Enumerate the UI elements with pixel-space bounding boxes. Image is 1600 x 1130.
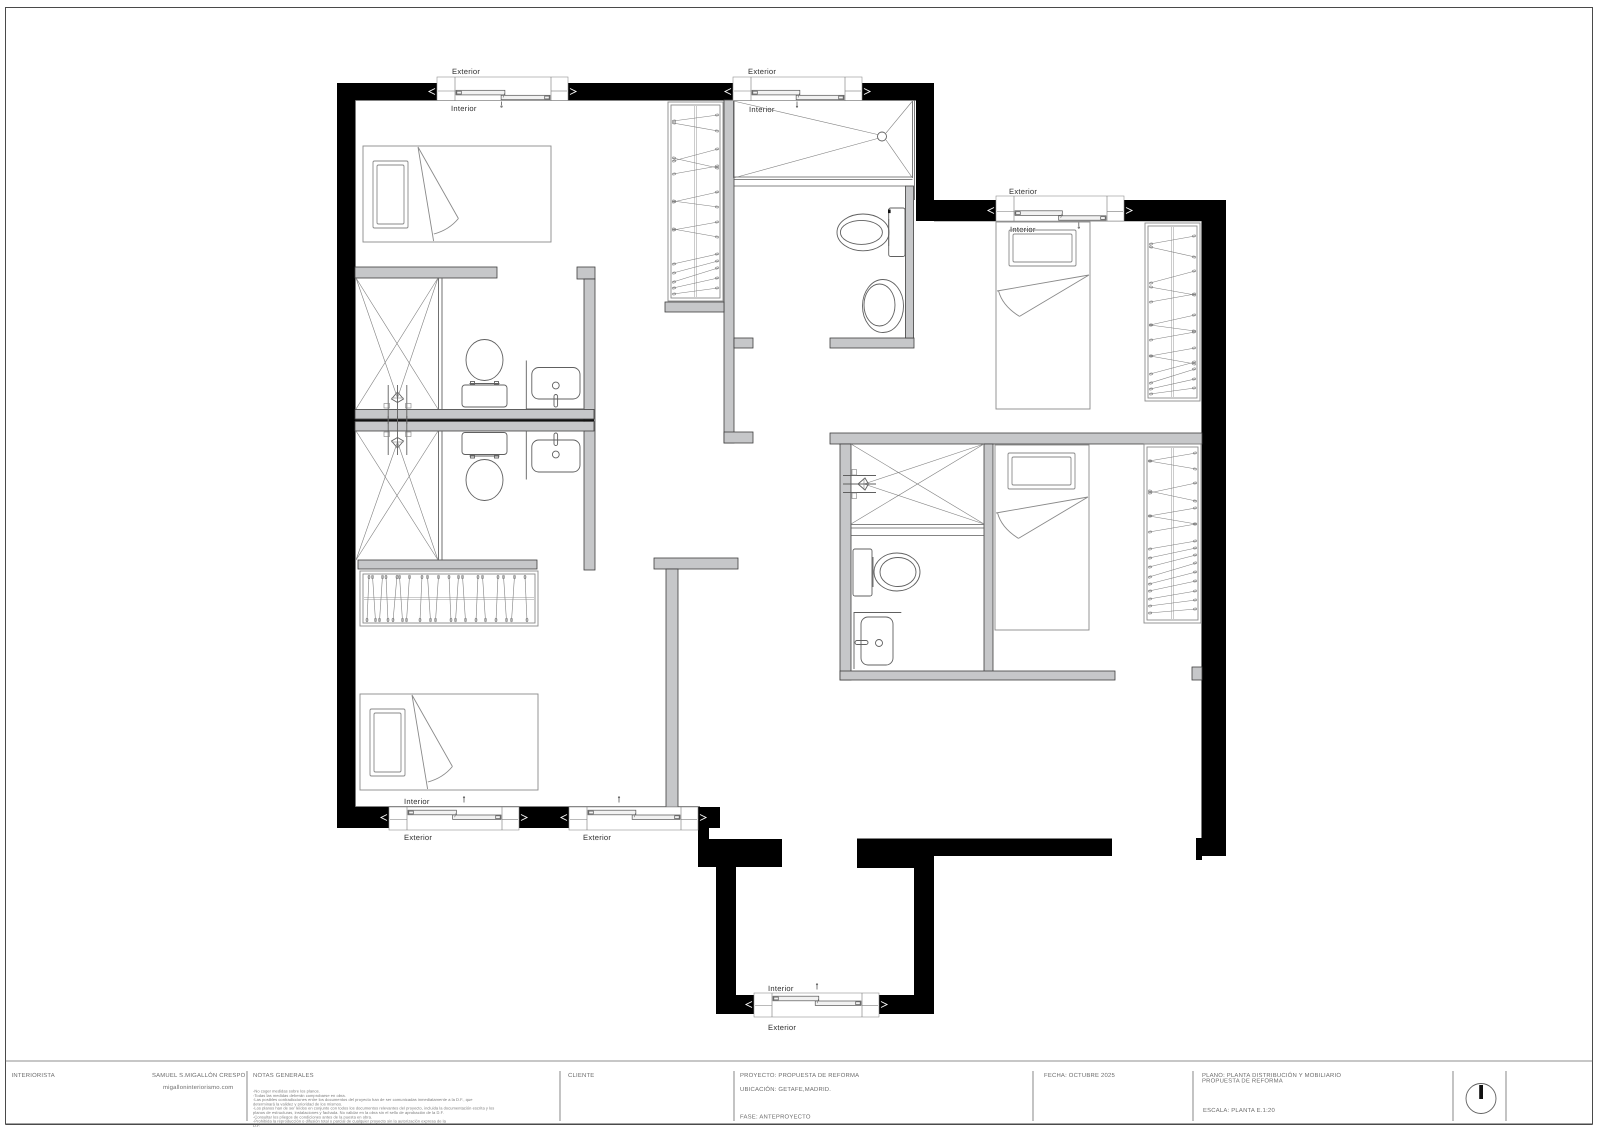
svg-text:-Prohibida la reproducción o d: -Prohibida la reproducción o difusión to… [253, 1119, 447, 1124]
svg-text:Interior: Interior [1010, 225, 1036, 234]
svg-text:Exterior: Exterior [768, 1023, 796, 1032]
svg-text:D.F.: D.F. [253, 1123, 260, 1128]
svg-text:migalloninteriorismo.com: migalloninteriorismo.com [163, 1084, 233, 1091]
svg-text:Interior: Interior [768, 984, 794, 993]
svg-text:Exterior: Exterior [404, 833, 432, 842]
svg-text:Interior: Interior [451, 104, 477, 113]
svg-text:FECHA: OCTUBRE 2025: FECHA: OCTUBRE 2025 [1044, 1072, 1115, 1079]
svg-text:SAMUEL S.MIGALLÓN CRESPO: SAMUEL S.MIGALLÓN CRESPO [152, 1071, 246, 1079]
svg-text:PROYECTO: PROPUESTA DE REFO: PROYECTO: PROPUESTA DE REFORMA [740, 1072, 859, 1079]
svg-text:Interior: Interior [404, 797, 430, 806]
svg-text:FASE: ANTEPROYECTO: FASE: ANTEPROYECTO [740, 1114, 811, 1121]
svg-text:UBICACIÓN: GETAFE,MADRID.: UBICACIÓN: GETAFE,MADRID. [740, 1085, 831, 1093]
svg-text:CLIENTE: CLIENTE [568, 1072, 594, 1079]
svg-text:Exterior: Exterior [748, 67, 776, 76]
svg-text:Exterior: Exterior [1009, 187, 1037, 196]
svg-text:ESCALA: PLANTA E.1:20: ESCALA: PLANTA E.1:20 [1203, 1107, 1275, 1114]
svg-text:NOTAS GENERALES: NOTAS GENERALES [253, 1072, 314, 1079]
svg-text:PROPUESTA DE REFORMA: PROPUESTA DE REFORMA [1202, 1078, 1283, 1085]
svg-text:Exterior: Exterior [452, 67, 480, 76]
svg-text:INTERIORISTA: INTERIORISTA [12, 1072, 55, 1079]
svg-text:Exterior: Exterior [583, 833, 611, 842]
